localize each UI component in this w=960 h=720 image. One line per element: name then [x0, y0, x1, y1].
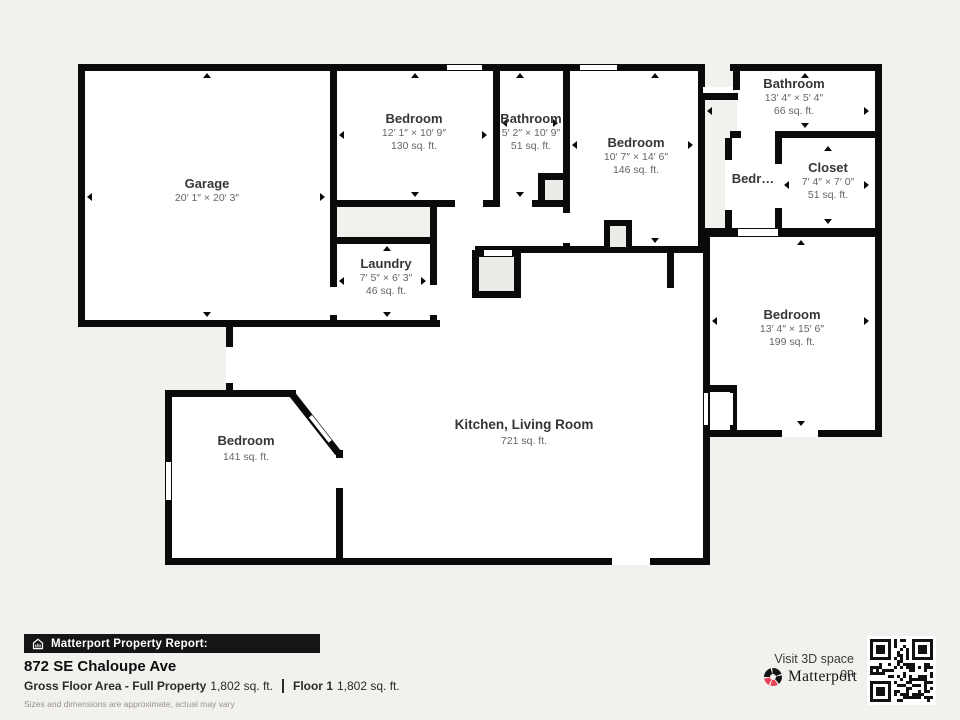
dimension-arrow	[383, 312, 391, 317]
dimension-arrow	[864, 181, 869, 189]
door-opening	[738, 229, 778, 236]
wall-segment	[667, 253, 674, 288]
wall-segment	[875, 64, 882, 437]
dimension-arrow	[383, 246, 391, 251]
dimension-arrow	[87, 193, 92, 201]
floor-plan-page: Garage 20′ 1″ × 20′ 3″ Bedroom 12′ 1″ × …	[0, 0, 960, 720]
room-name: Garage	[175, 176, 239, 191]
room-dims: 10′ 7″ × 14′ 6″	[604, 151, 668, 164]
wall-segment	[730, 64, 882, 71]
door-opening	[612, 558, 650, 565]
room-area: 146 sq. ft.	[604, 164, 668, 176]
wall-segment	[336, 558, 710, 565]
fixture-fill	[610, 226, 626, 247]
wall-segment	[78, 320, 440, 327]
matterport-logo: Matterport	[764, 668, 857, 686]
room-area: 51 sq. ft.	[500, 140, 561, 152]
window	[580, 65, 617, 70]
dimension-arrow	[572, 141, 577, 149]
door-opening	[782, 430, 818, 437]
dimension-arrow	[516, 192, 524, 197]
dimension-arrow	[411, 192, 419, 197]
door-opening	[226, 347, 233, 383]
room-label-closet: Closet 7′ 4″ × 7′ 0″ 51 sq. ft.	[802, 160, 855, 201]
room-name: Bedroom	[217, 433, 274, 448]
room-area: 46 sq. ft.	[360, 285, 413, 297]
dimension-arrow	[411, 73, 419, 78]
dimension-arrow	[339, 277, 344, 285]
window	[166, 462, 171, 500]
dimension-arrow	[864, 107, 869, 115]
dimension-arrow	[688, 141, 693, 149]
room-dims: 13′ 4″ × 5′ 4″	[763, 92, 824, 105]
dimension-arrow	[824, 146, 832, 151]
report-label: Matterport Property Report:	[51, 638, 208, 650]
room-dims: 12′ 1″ × 10′ 9″	[382, 127, 446, 140]
room-label-bedroom-right: Bedroom 13′ 4″ × 15′ 6″ 199 sq. ft.	[760, 307, 824, 348]
matterport-wordmark: Matterport	[788, 668, 857, 686]
dimension-arrow	[707, 107, 712, 115]
window	[447, 65, 482, 70]
door-opening	[430, 285, 437, 315]
room-area: 130 sq. ft.	[382, 140, 446, 152]
room-dims: 20′ 1″ × 20′ 3″	[175, 192, 239, 205]
fixture-fill	[545, 180, 563, 200]
wall-segment	[78, 64, 85, 327]
wall-segment	[330, 237, 437, 244]
dimension-arrow	[516, 73, 524, 78]
wall-segment	[698, 93, 738, 100]
qr-code	[867, 636, 936, 705]
wall-segment	[165, 390, 296, 397]
room-name: Kitchen, Living Room	[455, 417, 594, 432]
dimension-arrow	[482, 131, 487, 139]
wall-segment	[165, 558, 343, 565]
gross-floor-area-value: 1,802 sq. ft.	[210, 679, 273, 693]
room-name: Bedroom	[382, 111, 446, 126]
door-opening	[704, 393, 708, 425]
door-opening	[775, 164, 782, 208]
door-opening	[563, 213, 570, 243]
wall-segment	[703, 432, 710, 565]
dimension-arrow	[797, 240, 805, 245]
room-name: Closet	[802, 160, 855, 175]
room-name: Bedroom	[604, 135, 668, 150]
door-opening	[455, 200, 483, 207]
room-label-bedroom-middle: Bedroom 10′ 7″ × 14′ 6″ 146 sq. ft.	[604, 135, 668, 176]
door-opening	[703, 87, 733, 93]
dimension-arrow	[203, 312, 211, 317]
dimension-arrow	[339, 131, 344, 139]
door-opening	[336, 458, 343, 488]
closet-fill	[710, 392, 730, 430]
room-area: 141 sq. ft.	[217, 451, 274, 463]
dimension-arrow	[203, 73, 211, 78]
dimension-arrow	[651, 238, 659, 243]
room-label-bedroom-bottom-left: Bedroom 141 sq. ft.	[217, 433, 274, 463]
room-label-bathroom-top: Bathroom 5′ 2″ × 10′ 9″ 51 sq. ft.	[500, 111, 561, 152]
room-area: 199 sq. ft.	[760, 336, 824, 348]
room-dims: 7′ 5″ × 6′ 3″	[360, 272, 413, 285]
separator	[282, 679, 284, 693]
room-dims: 7′ 4″ × 7′ 0″	[802, 176, 855, 189]
dimension-arrow	[824, 219, 832, 224]
room-label-bathroom-right: Bathroom 13′ 4″ × 5′ 4″ 66 sq. ft.	[763, 76, 824, 117]
room-label-bedroom-truncated: Bedr…	[732, 171, 775, 186]
gross-floor-area-label: Gross Floor Area - Full Property	[24, 679, 206, 693]
door-opening	[330, 287, 337, 315]
wall-segment	[330, 200, 570, 207]
report-header-bar: Matterport Property Report:	[24, 634, 320, 653]
dimension-arrow	[797, 421, 805, 426]
dimension-arrow	[651, 73, 659, 78]
matterport-icon	[764, 668, 782, 686]
room-label-laundry: Laundry 7′ 5″ × 6′ 3″ 46 sq. ft.	[360, 256, 413, 297]
room-dims: 5′ 2″ × 10′ 9″	[500, 127, 561, 140]
fixture-fill	[479, 257, 514, 291]
dimension-arrow	[712, 317, 717, 325]
room-area: 66 sq. ft.	[763, 105, 824, 117]
floor-value: 1,802 sq. ft.	[337, 679, 400, 693]
door-opening	[729, 393, 733, 425]
property-address: 872 SE Chaloupe Ave	[24, 658, 176, 675]
wall-segment	[493, 64, 500, 207]
room-area: 51 sq. ft.	[802, 189, 855, 201]
room-name: Laundry	[360, 256, 413, 271]
door-opening	[741, 131, 775, 138]
room-dims: 13′ 4″ × 15′ 6″	[760, 323, 824, 336]
room-label-bedroom-top: Bedroom 12′ 1″ × 10′ 9″ 130 sq. ft.	[382, 111, 446, 152]
room-name: Bathroom	[763, 76, 824, 91]
room-name: Bathroom	[500, 111, 561, 126]
dimension-arrow	[801, 123, 809, 128]
wall-segment	[733, 64, 740, 90]
dimension-arrow	[320, 193, 325, 201]
dimension-arrow	[421, 277, 426, 285]
house-icon	[32, 638, 44, 650]
room-area: 721 sq. ft.	[455, 435, 594, 447]
door-opening	[484, 250, 512, 256]
floor-area-line: Gross Floor Area - Full Property 1,802 s…	[24, 679, 400, 693]
room-name: Bedr…	[732, 171, 775, 186]
dimension-arrow	[864, 317, 869, 325]
room-name: Bedroom	[760, 307, 824, 322]
dimension-arrow	[784, 181, 789, 189]
wall-segment	[698, 228, 882, 237]
floor-label: Floor 1	[293, 679, 333, 693]
room-label-garage: Garage 20′ 1″ × 20′ 3″	[175, 176, 239, 205]
door-opening	[500, 200, 532, 207]
disclaimer: Sizes and dimensions are approximate, ac…	[24, 699, 235, 709]
room-label-kitchen-living: Kitchen, Living Room 721 sq. ft.	[455, 417, 594, 447]
